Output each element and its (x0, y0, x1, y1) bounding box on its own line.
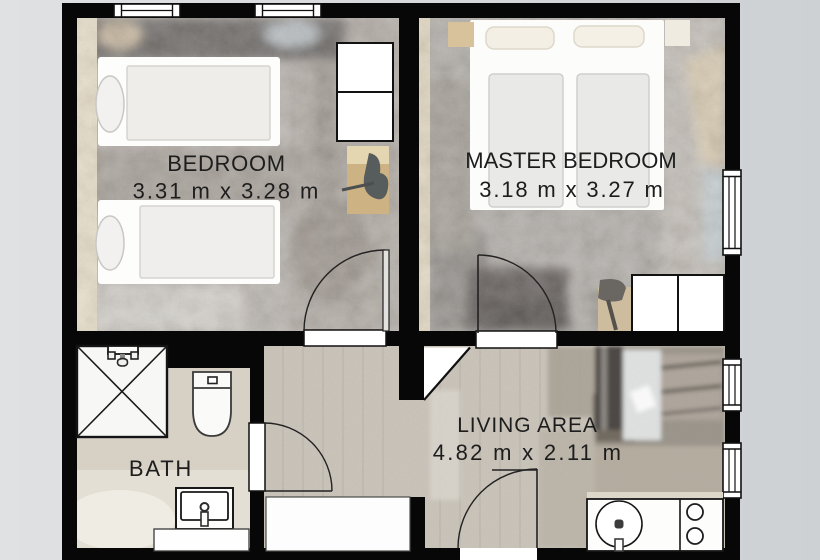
svg-text:LIVING AREA: LIVING AREA (457, 414, 598, 437)
svg-text:4.82 m x 2.11 m: 4.82 m x 2.11 m (433, 440, 624, 465)
svg-text:3.18 m x 3.27 m: 3.18 m x 3.27 m (479, 177, 665, 202)
svg-text:BATH: BATH (129, 456, 193, 481)
svg-text:MASTER BEDROOM: MASTER BEDROOM (465, 148, 676, 173)
svg-text:3.31 m x 3.28 m: 3.31 m x 3.28 m (133, 179, 321, 204)
svg-text:BEDROOM: BEDROOM (167, 151, 286, 176)
